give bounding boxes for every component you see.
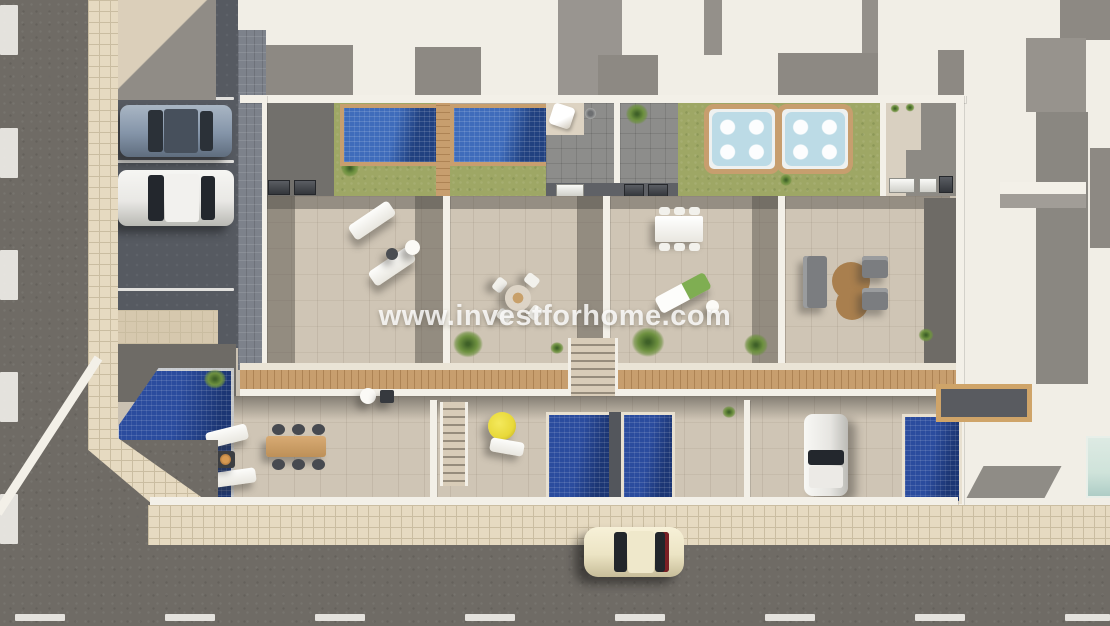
dining-chair [659,207,670,215]
lane-marking [1065,614,1110,621]
car-windshield [148,175,164,221]
pool-lower-2 [546,412,612,506]
hot-tub-2 [777,104,853,174]
sidewalk-left [88,0,118,442]
pergola [936,384,1032,422]
parked-car-driveway [804,414,848,496]
car-rear-window [200,111,213,151]
potted-plant [904,102,916,113]
car-windshield [148,110,163,152]
lane-marking [15,614,65,621]
terrace-left-shadow [265,196,295,363]
dining-chair [689,243,700,251]
dining-chair-dark [272,459,285,470]
parking-line [114,160,234,163]
lower-divider-wall [430,400,437,497]
roof-edge [238,0,268,30]
lane-marking [165,614,215,621]
west-wall [262,95,267,370]
ac-unit [294,180,316,195]
dining-chair-dark [272,424,285,435]
neighbor-roof-shadow [1090,148,1110,248]
lane-marking [0,128,18,178]
paver-walk [114,310,218,346]
ac-unit [919,178,937,193]
pool-lower-4 [902,414,962,504]
lane-marking [615,614,665,621]
parked-car-silver [120,105,232,157]
fire-pit [216,451,235,468]
parasol-yellow [488,412,516,440]
car-roof [165,174,199,222]
round-table-white [360,388,376,404]
armchair [862,256,888,278]
lane-marking [465,614,515,621]
south-boundary-wall [150,497,958,505]
dining-chair [674,243,685,251]
terrace-unit4-shadow [921,103,956,153]
outdoor-dining-table-wood [266,436,326,457]
lane-marking [765,614,815,621]
garden-bush [200,366,230,392]
terrace-divider-wall-3 [778,196,785,370]
dining-chair [674,207,685,215]
car-windshield [808,450,844,465]
outdoor-shower-base [585,108,596,119]
lane-marking [915,614,965,621]
lane-marking [0,5,18,55]
car-rear-window [655,532,669,572]
dining-table [655,216,703,242]
lawn-plant [778,172,794,188]
lane-marking [315,614,365,621]
palm-tree [740,330,772,360]
car-windshield [614,532,627,572]
roof-shadow-block [265,45,353,95]
roof-shadow-block [598,55,658,97]
car-roof [628,531,654,573]
roof-shadow-block [415,47,481,95]
barbecue-grill [380,390,394,403]
palm-plant [916,326,936,344]
dining-chair-dark [312,424,325,435]
ac-unit [889,178,915,193]
car-roof [164,109,198,153]
dining-chair-dark [292,459,305,470]
parked-car-white [118,170,234,226]
lane-marking [0,372,18,422]
dining-chair [659,243,670,251]
aerial-render: www.investforhome.com [0,0,1110,626]
patio-palm [622,100,652,128]
side-table-round [405,240,420,255]
staircase-side [440,402,468,486]
parking-line [114,288,234,291]
driving-car-cream [584,527,684,577]
neighbor-roof-shadow [1060,0,1110,40]
pool-gap-shaded [609,412,621,500]
neighbor-white-beam [1000,182,1086,208]
armchair [862,288,888,310]
roof-wall-shadow [862,0,878,53]
car-roof [809,466,843,488]
hot-tub-1 [704,104,780,174]
wood-steps-between-units [436,103,450,196]
hot-tub-water [712,112,772,166]
terrace-plant [720,404,738,420]
glass-skylight [1086,436,1110,498]
pool-lower-3 [621,412,675,506]
hot-tub-water [785,112,845,166]
lower-divider-wall [744,400,750,497]
lane-marking [0,250,18,300]
dining-chair [689,207,700,215]
roof-shadow-block [778,53,878,97]
wall-shadow [415,196,443,363]
neighbor-roof-box [1026,38,1086,112]
ac-unit [268,180,290,195]
palm-plant [548,340,566,356]
dining-chair-dark [312,459,325,470]
pool-unit2 [450,104,554,166]
pool-unit1 [340,104,442,166]
side-passage-shaded [924,198,956,370]
sofa [803,256,827,308]
carport-roof [116,0,216,100]
north-boundary-wall [240,95,966,103]
watermark: www.investforhome.com [379,300,732,333]
car-rear-window [201,176,215,220]
ac-unit [939,176,953,193]
neighbor-shadow-column [1036,112,1088,384]
potted-plant [889,103,901,114]
dining-chair-dark [292,424,305,435]
fire-bowl [220,454,231,465]
roof-wall-shadow [704,0,722,55]
serving-tray [386,248,398,260]
